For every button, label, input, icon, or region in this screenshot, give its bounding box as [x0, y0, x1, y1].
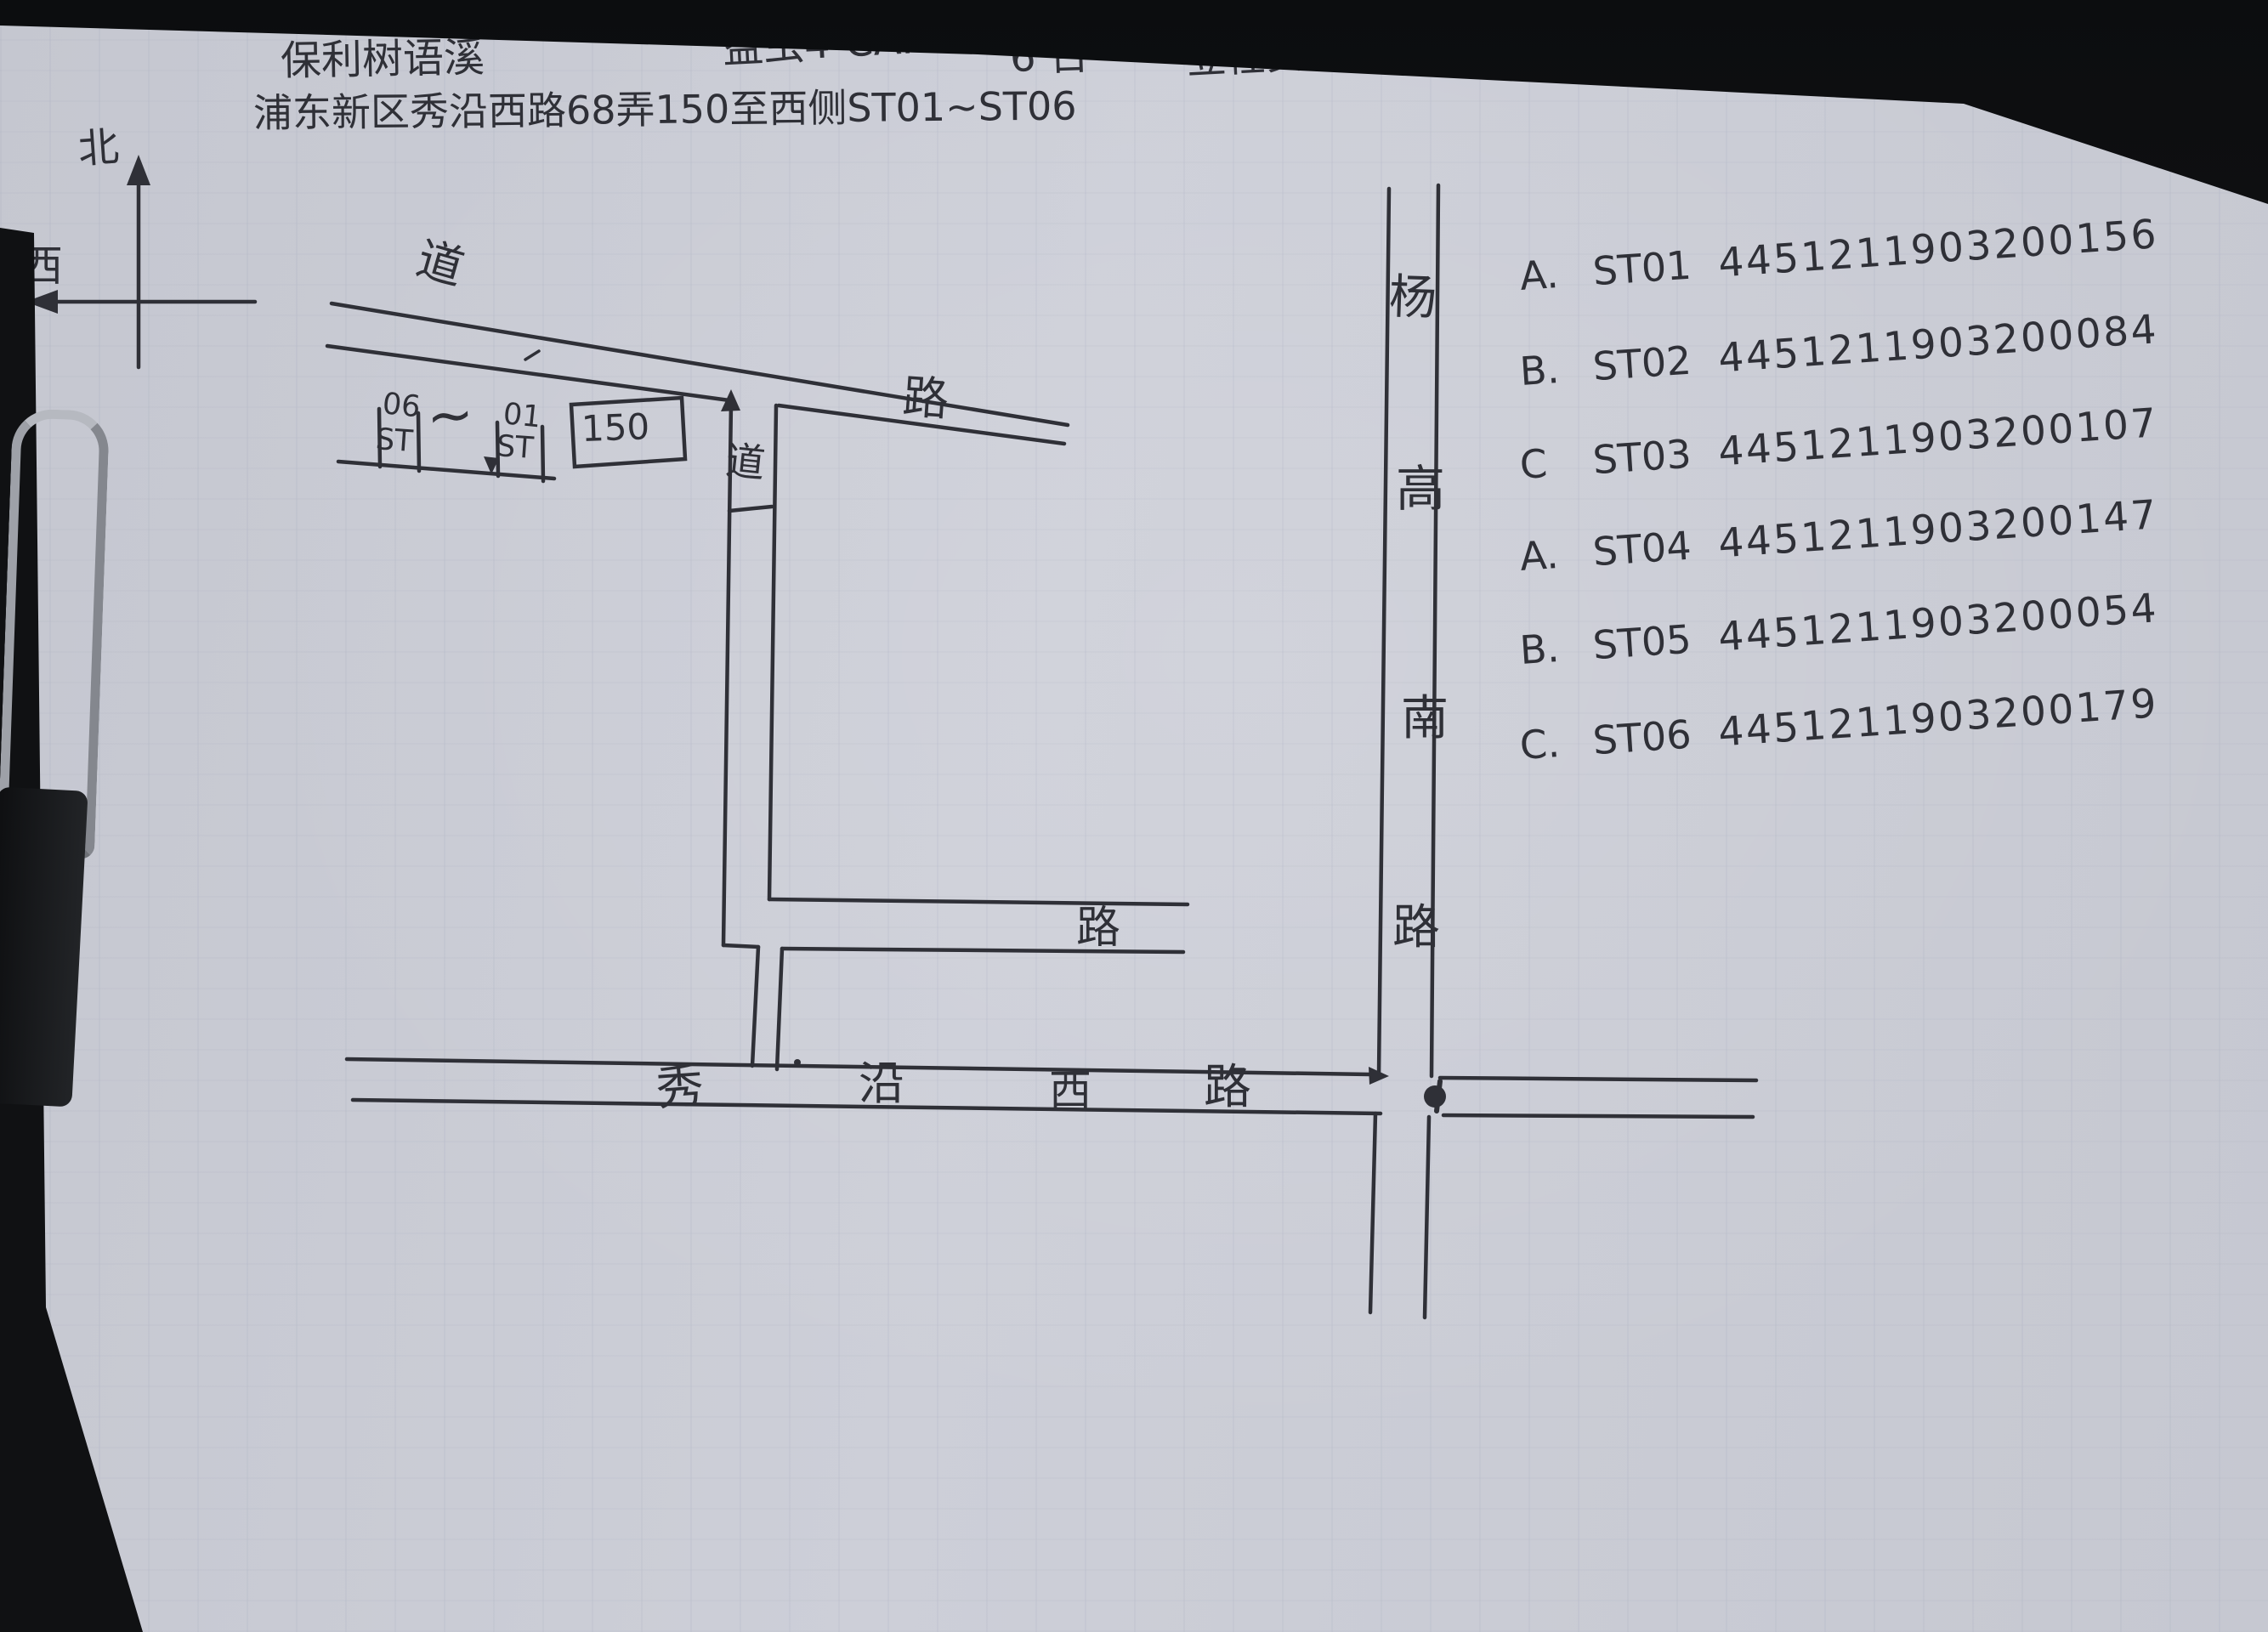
station-row-4: A. ST04 4451211903200147 [1518, 491, 2159, 581]
station-row-2: B. ST02 4451211903200084 [1518, 306, 2159, 395]
south-road-top-line-right [1440, 1078, 1756, 1080]
row-number: 4451211903200084 [1717, 306, 2160, 382]
project-name: 保利树语溪 [281, 37, 485, 82]
north-road-label-right: 路 [901, 374, 950, 423]
lane-lower-left-line [752, 947, 758, 1066]
pole-range-left-bottom: ST [375, 425, 414, 457]
row-station: ST04 [1591, 521, 1720, 575]
middle-road-bottom-line-left [723, 945, 758, 947]
lane-lower-right-line [777, 949, 782, 1069]
row-letter: A. [1518, 248, 1594, 299]
station-row-5: B. ST05 4451211903200054 [1518, 585, 2159, 674]
row-number: 4451211903200054 [1717, 585, 2160, 660]
row-letter: C [1518, 437, 1594, 488]
vertical-road-char-4: 路 [1392, 904, 1440, 952]
row-number: 4451211903200147 [1717, 491, 2160, 567]
lane-upper-right-line [769, 405, 776, 899]
row-letter: C. [1518, 717, 1594, 768]
south-road-char-3: 西 [1049, 1069, 1091, 1112]
pole-range-right-top: 01 [502, 399, 542, 433]
pole-range-left-top: 06 [381, 389, 422, 422]
middle-road-label: 路 [1076, 906, 1120, 950]
building-number: 150 [581, 409, 650, 447]
row-number: 4451211903200107 [1717, 399, 2160, 475]
south-road-char-4: 路 [1204, 1064, 1251, 1112]
lane-label: 道 [724, 440, 768, 484]
row-letter: B. [1518, 622, 1594, 673]
intersection-dot [1424, 1085, 1446, 1108]
row-letter: A. [1518, 529, 1594, 580]
stray-tick [525, 351, 539, 360]
vertical-road-char-2: 高 [1396, 464, 1445, 513]
vertical-road-char-1: 杨 [1388, 274, 1437, 323]
lane-connector [729, 507, 772, 511]
lane-upper-left-line [723, 403, 731, 945]
middle-road-bottom-line-right [782, 949, 1183, 952]
row-station: ST06 [1591, 710, 1720, 764]
compass-north-label: 北 [77, 127, 120, 170]
south-road-char-2: 沿 [859, 1061, 904, 1107]
row-station: ST01 [1591, 241, 1720, 295]
location-line: 浦东新区秀沿西路68弄150至西侧ST01~ST06 [253, 87, 1077, 133]
vertical-road-right-line-lower [1425, 1117, 1429, 1317]
vertical-road-left-line-lower [1370, 1113, 1375, 1312]
photo-stage: 保利树语溪 益虫4-CAN 6 台 立柱安装 测微卡：STZD 002493 浦… [0, 0, 2268, 1632]
row-number: 4451211903200179 [1717, 680, 2160, 756]
compass-north-arrowhead [127, 155, 150, 185]
pole-range-separator: ~ [425, 386, 476, 445]
row-station: ST02 [1591, 336, 1720, 390]
row-letter: B. [1518, 343, 1594, 394]
station-row-6: C. ST06 4451211903200179 [1518, 680, 2159, 769]
row-station: ST03 [1591, 429, 1720, 484]
south-road-char-1: 秀 [655, 1062, 706, 1113]
lane-junction-dot [794, 1059, 801, 1066]
station-list: A. ST01 4451211903200156 B. ST02 4451211… [1520, 253, 2166, 814]
pole-tick-4 [542, 427, 543, 481]
middle-road-top-line [769, 899, 1188, 904]
south-road-bottom-line-right [1443, 1115, 1753, 1117]
vertical-road-char-3: 南 [1401, 695, 1449, 743]
row-station: ST05 [1591, 615, 1720, 669]
pole-range-right-bottom: ST [496, 432, 535, 464]
station-row-3: C ST03 4451211903200107 [1518, 399, 2159, 489]
